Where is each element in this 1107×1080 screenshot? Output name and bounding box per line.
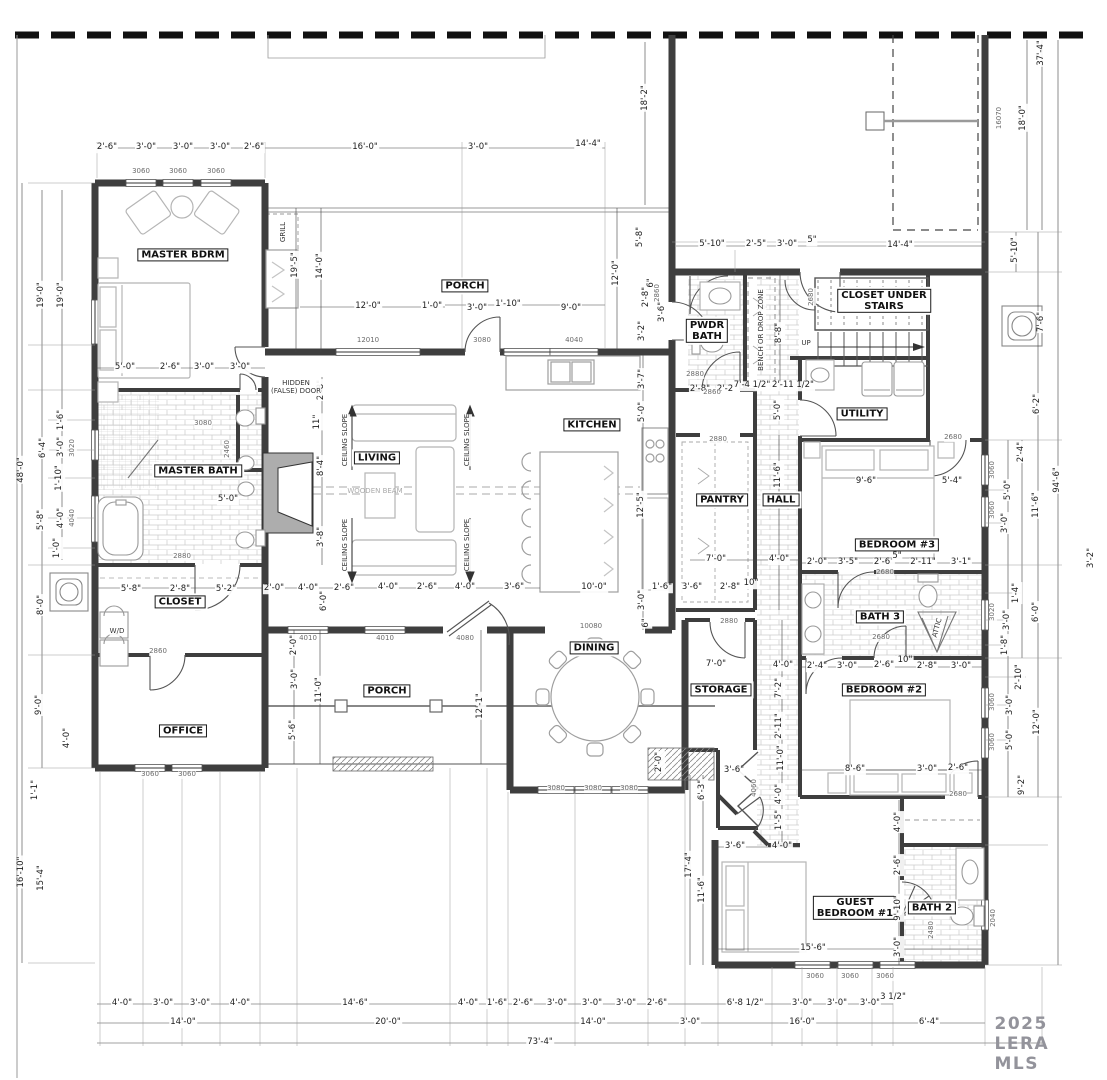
annotation-label: ATTIC	[932, 618, 945, 639]
dimension-label: 9'-0"	[35, 694, 45, 716]
room-label-pwdr-bath: PWDR BATH	[686, 319, 728, 343]
dimension-label: 6'-0"	[320, 590, 330, 612]
size-tag: 3080	[473, 337, 491, 345]
dimension-label: 1'-0"	[421, 302, 443, 312]
room-label-storage: STORAGE	[690, 683, 751, 696]
dimension-label: 14'-0"	[316, 252, 326, 280]
size-tag: 3080	[584, 785, 602, 793]
size-tag: 2860	[703, 389, 721, 397]
room-label-office: OFFICE	[159, 724, 207, 737]
dimension-label: 2'-8"	[689, 385, 711, 395]
room-label-dining: DINING	[570, 641, 619, 654]
annotation-label: BENCH OR DROP ZONE	[758, 289, 766, 371]
size-tag: 3060	[178, 771, 196, 779]
dimension-label: 94'-6"	[1053, 466, 1063, 494]
dimension-label: 3'-0"	[776, 240, 798, 250]
annotation-label: CEILING SLOPE	[464, 414, 472, 466]
dimension-label: 3'-0"	[826, 999, 848, 1009]
size-tag: 2680	[944, 434, 962, 442]
dimension-label: 3'-7"	[638, 368, 648, 390]
dimension-label: 7'-4 1/2"	[733, 381, 772, 391]
dimension-label: 12'-0"	[612, 259, 622, 287]
dimension-label: 3'-0"	[467, 143, 489, 153]
annotation-label: UP	[801, 340, 810, 348]
dimension-label: 3'-0"	[638, 589, 648, 611]
dimension-label: 2'-6"	[243, 143, 265, 153]
dimension-label: 3'-2"	[1087, 547, 1097, 569]
dimension-label: 12'-0"	[1033, 708, 1043, 736]
size-tag: 4060	[751, 779, 759, 797]
dimension-label: 3 1/2"	[879, 993, 907, 1003]
dimension-label: 5"	[806, 236, 817, 246]
dimension-label: 2'-6"	[646, 999, 668, 1009]
room-label-porch-bottom: PORCH	[363, 684, 410, 697]
size-tag: 3060	[876, 973, 894, 981]
size-tag: 3060	[989, 461, 997, 479]
dimension-label: 3'-0"	[57, 436, 67, 458]
dimension-label: 10"	[743, 579, 760, 589]
size-tag: 2860	[149, 648, 167, 656]
size-tag: 3060	[207, 168, 225, 176]
dimension-label: 4'-0"	[768, 555, 790, 565]
dimension-label: 7'-6"	[1037, 311, 1047, 333]
dimension-label: 3'-0"	[894, 936, 904, 958]
dimension-label: 9'-0"	[560, 304, 582, 314]
dimension-label: 2'-4"	[1017, 441, 1027, 463]
size-tag: 4080	[456, 635, 474, 643]
dimension-label: 3'-0"	[950, 662, 972, 672]
dimension-label: 3'-0"	[679, 1018, 701, 1028]
dimension-label: 12'-0"	[354, 302, 382, 312]
dimension-label: 3'-0"	[135, 143, 157, 153]
size-tag: 10080	[580, 623, 602, 631]
room-label-guest-bedroom-1: GUEST BEDROOM #1	[813, 896, 897, 920]
dimension-label: 1'-10"	[494, 300, 522, 310]
dimension-label: 2'-8"	[719, 583, 741, 593]
dimension-label: 4'-0"	[772, 661, 794, 671]
dimension-label: 12'-1"	[476, 692, 486, 720]
dimension-label: 11'-6"	[1032, 491, 1042, 519]
size-tag: 3060	[141, 771, 159, 779]
dimension-label: 2'-6"	[894, 854, 904, 876]
dimension-label: 15'-4"	[37, 864, 47, 892]
dimension-label: 14'-4"	[574, 140, 602, 150]
room-label-bedroom-2: BEDROOM #2	[842, 683, 926, 696]
size-tag: 3060	[989, 501, 997, 519]
dimension-label: 3'-0"	[466, 304, 488, 314]
dimension-label: 1'-5"	[775, 809, 785, 831]
dimension-label: 5'-10"	[698, 240, 726, 250]
size-tag: 3060	[132, 168, 150, 176]
size-tag: 12010	[357, 337, 379, 345]
dimension-label: 2'-0"	[806, 558, 828, 568]
dimension-label: 19'-5"	[291, 251, 301, 279]
dimension-label: 14'-6"	[341, 999, 369, 1009]
dimension-label: 1'-6"	[651, 583, 673, 593]
dimension-label: 5'-6"	[289, 719, 299, 741]
dimension-label: 8'-6"	[844, 765, 866, 775]
dimension-label: 2'-5"	[745, 240, 767, 250]
floor-plan-sheet: MASTER BDRMPORCHPWDR BATHCLOSET UNDER ST…	[0, 0, 1107, 1080]
room-label-closet-under-stairs: CLOSET UNDER STAIRS	[837, 289, 931, 313]
dimension-label: 2'-4"	[806, 662, 828, 672]
size-tag: 2480	[928, 921, 936, 939]
annotation-label: GRILL	[280, 222, 288, 242]
dimension-label: 3'-0"	[581, 999, 603, 1009]
dimension-label: 3'-6"	[724, 842, 746, 852]
room-label-bath-3: BATH 3	[856, 610, 904, 623]
dimension-label: 5'-0"	[774, 399, 784, 421]
size-tag: 4010	[299, 635, 317, 643]
dimension-label: 18'-0"	[1019, 104, 1029, 132]
dimension-label: 5'-0"	[1006, 729, 1016, 751]
size-tag: 3060	[806, 973, 824, 981]
size-tag: 3080	[547, 785, 565, 793]
dimension-label: 48'-0"	[17, 456, 27, 484]
dimension-label: 10'-0"	[580, 583, 608, 593]
annotation-label: W/D	[110, 628, 125, 636]
dimension-label: 3'-5"	[837, 558, 859, 568]
dimension-label: 16'-0"	[351, 143, 379, 153]
size-tag: 2040	[990, 909, 998, 927]
size-tag: 3060	[989, 693, 997, 711]
dimension-label: 4'-0"	[894, 811, 904, 833]
dimension-label: 17'-4"	[685, 851, 695, 879]
room-label-master-bdrm: MASTER BDRM	[137, 248, 228, 261]
size-tag: 3080	[620, 785, 638, 793]
dimension-label: 8'-0"	[37, 594, 47, 616]
dimension-label: 16'-0"	[788, 1018, 816, 1028]
dimension-label: 2'-11"	[775, 712, 785, 740]
size-tag: 2680	[949, 791, 967, 799]
dimension-label: 3'-0"	[836, 662, 858, 672]
size-tag: 4040	[565, 337, 583, 345]
size-tag: 2680	[872, 634, 890, 642]
size-tag: 3060	[989, 733, 997, 751]
dimension-label: 9'-10"	[894, 894, 904, 922]
size-tag: 2460	[224, 440, 232, 458]
dimension-label: 3'-0"	[916, 765, 938, 775]
size-tag: 2880	[720, 618, 738, 626]
dimension-label: 6'-4"	[918, 1018, 940, 1028]
dimension-label: 14'-4"	[886, 241, 914, 251]
dimension-label: 4'-0"	[111, 999, 133, 1009]
dimension-label: 6"	[642, 617, 652, 628]
room-label-bedroom-3: BEDROOM #3	[855, 538, 939, 551]
size-tag: 3020	[69, 439, 77, 457]
annotation-label: WOODEN BEAM	[347, 488, 402, 496]
room-label-utility: UTILITY	[837, 407, 888, 420]
annotation-label: HIDDEN (FALSE) DOOR	[271, 380, 321, 396]
dimension-label: 4'-0"	[377, 583, 399, 593]
dimension-label: 19'-0"	[37, 281, 47, 309]
dimension-label: 3'-1"	[950, 558, 972, 568]
dimension-label: 4'-0"	[297, 584, 319, 594]
size-tag: 2880	[686, 371, 704, 379]
dimension-label: 1'-1"	[31, 779, 41, 801]
size-tag: 3060	[841, 973, 859, 981]
dimension-label: 4'-0"	[454, 583, 476, 593]
annotation-label: CEILING SLOPE	[342, 414, 350, 466]
dimension-label: 1'-6"	[57, 409, 67, 431]
size-tag: 3080	[194, 420, 212, 428]
dimension-label: 9'-6"	[855, 477, 877, 487]
dimension-label: 11'-0"	[777, 744, 787, 772]
dimension-label: 2'-6"	[159, 363, 181, 373]
room-label-hall: HALL	[763, 493, 800, 506]
dimension-label: 3'-0"	[189, 999, 211, 1009]
dimension-label: 18'-2"	[641, 84, 651, 112]
dimension-label: 3'-8"	[317, 526, 327, 548]
dimension-label: 3'-0"	[209, 143, 231, 153]
dimension-label: 3'-6"	[503, 583, 525, 593]
dimension-label: 2'-11"	[909, 558, 937, 568]
room-label-living: LIVING	[354, 451, 400, 464]
dimension-label: 6'-3"	[698, 779, 708, 801]
room-label-bath-2: BATH 2	[908, 901, 956, 914]
dimension-label: 2'-0"	[655, 751, 665, 773]
dimension-label: 11'-6"	[698, 876, 708, 904]
dimension-label: 2'-8"	[642, 286, 652, 308]
dimension-label: 1'-0"	[53, 537, 63, 559]
dimension-label: 3'-6"	[723, 766, 745, 776]
size-tag: 4040	[69, 509, 77, 527]
dimension-label: 5'-0"	[114, 363, 136, 373]
dimension-label: 6'-0"	[1032, 601, 1042, 623]
dimension-label: 2'-11 1/2"	[771, 381, 815, 391]
room-label-porch-top: PORCH	[441, 279, 488, 292]
room-label-closet: CLOSET	[155, 595, 206, 608]
dimension-label: 5'-8"	[37, 509, 47, 531]
dimension-label: 4'-0"	[775, 783, 785, 805]
dimension-label: 1'-8"	[1001, 634, 1011, 656]
dimension-label: 2'-8"	[169, 585, 191, 595]
dimension-label: 2'-2"	[716, 385, 738, 395]
size-tag: 2880	[709, 436, 727, 444]
dimension-label: 9'-2"	[1018, 774, 1028, 796]
dimension-label: 2'-6"	[333, 584, 355, 594]
dimension-label: 5'-10"	[1011, 236, 1021, 264]
dimension-label: 11'-0"	[315, 676, 325, 704]
dimension-label: 11'-6"	[774, 461, 784, 489]
dimension-label: 5'-0"	[217, 495, 239, 505]
size-tag: 2680	[808, 288, 816, 306]
size-tag: 3020	[989, 603, 997, 621]
dimension-label: 37'-4"	[1037, 39, 1047, 67]
dimension-label: 2'-6"	[96, 143, 118, 153]
dimension-label: 8'-8"	[775, 322, 785, 344]
size-tag: 2860	[654, 284, 662, 302]
room-label-master-bath: MASTER BATH	[154, 464, 242, 477]
dimension-label: 5'-0"	[1004, 479, 1014, 501]
dimension-label: 3'-0"	[615, 999, 637, 1009]
dimension-label: 7'-0"	[705, 555, 727, 565]
dimension-label: 3'-0"	[1001, 512, 1011, 534]
dimension-label: 2'-6"	[873, 661, 895, 671]
dimension-label: 3'-0"	[791, 999, 813, 1009]
dimension-label: 4'-0"	[457, 999, 479, 1009]
dimension-label: 2'-10"	[1015, 663, 1025, 691]
dimension-label: 4'-0"	[57, 507, 67, 529]
dimension-label: 11"	[313, 414, 323, 431]
dimension-label: 2'-0"	[290, 634, 300, 656]
dimension-label: 2'-0"	[263, 584, 285, 594]
size-tag: 4010	[376, 635, 394, 643]
size-tag: 2680	[876, 569, 894, 577]
dimension-label: 3'-0"	[193, 363, 215, 373]
size-tag: 2880	[173, 553, 191, 561]
dimension-label: 3'-0"	[1006, 694, 1016, 716]
dimension-label: 6"	[647, 277, 657, 288]
dimension-label: 3'-6"	[681, 583, 703, 593]
dimension-label: 1'-6"	[486, 999, 508, 1009]
dimension-label: 20'-0"	[374, 1018, 402, 1028]
dimension-label: 5'-2"	[215, 585, 237, 595]
dimension-label: 1'-10"	[55, 464, 65, 492]
dimension-label: 19'-0"	[57, 281, 67, 309]
dimension-label: 6'-4"	[39, 437, 49, 459]
plan-labels-layer: MASTER BDRMPORCHPWDR BATHCLOSET UNDER ST…	[0, 0, 1107, 1080]
dimension-label: 2'-6"	[512, 999, 534, 1009]
dimension-label: 2'-6"	[416, 583, 438, 593]
dimension-label: 73'-4"	[526, 1038, 554, 1048]
annotation-label: CEILING SLOPE	[464, 519, 472, 571]
dimension-label: 2'-8"	[916, 662, 938, 672]
dimension-label: 12'-5"	[637, 491, 647, 519]
room-label-kitchen: KITCHEN	[563, 418, 620, 431]
dimension-label: 2'-6"	[947, 764, 969, 774]
dimension-label: 8'-4"	[317, 455, 327, 477]
dimension-label: 5"	[891, 552, 902, 562]
dimension-label: 16'-10"	[17, 856, 27, 889]
dimension-label: 4'-0"	[771, 842, 793, 852]
dimension-label: 5'-4"	[941, 477, 963, 487]
dimension-label: 2'-8"	[317, 379, 327, 401]
dimension-label: 5'-8"	[636, 226, 646, 248]
dimension-label: 7'-2"	[775, 677, 785, 699]
dimension-label: 3'-2"	[638, 320, 648, 342]
dimension-label: 3'-0"	[546, 999, 568, 1009]
dimension-label: 6'-2"	[1033, 393, 1043, 415]
dimension-label: 10"	[897, 656, 914, 666]
annotation-label: CEILING SLOPE	[342, 519, 350, 571]
dimension-label: 2'-6"	[873, 558, 895, 568]
room-label-pantry: PANTRY	[696, 493, 748, 506]
dimension-label: 3'-0"	[172, 143, 194, 153]
size-tag: 16070	[996, 107, 1004, 129]
mls-watermark: 2025 LERA MLS	[995, 1014, 1070, 1074]
dimension-label: 6'-8 1/2"	[726, 999, 765, 1009]
dimension-label: 3'-0"	[859, 999, 881, 1009]
dimension-label: 3'-6"	[658, 301, 668, 323]
dimension-label: 1'-4"	[1012, 582, 1022, 604]
dimension-label: 14'-0"	[169, 1018, 197, 1028]
dimension-label: 14'-0"	[579, 1018, 607, 1028]
dimension-label: 5'-0"	[638, 401, 648, 423]
dimension-label: 3'-0"	[152, 999, 174, 1009]
dimension-label: 7'-0"	[705, 660, 727, 670]
dimension-label: 5'-8"	[120, 585, 142, 595]
dimension-label: 3'-0"	[229, 363, 251, 373]
size-tag: 3060	[169, 168, 187, 176]
dimension-label: 15'-6"	[799, 944, 827, 954]
dimension-label: 4'-0"	[229, 999, 251, 1009]
dimension-label: 4'-0"	[63, 727, 73, 749]
dimension-label: 3'-0"	[1003, 609, 1013, 631]
dimension-label: 3'-0"	[291, 668, 301, 690]
